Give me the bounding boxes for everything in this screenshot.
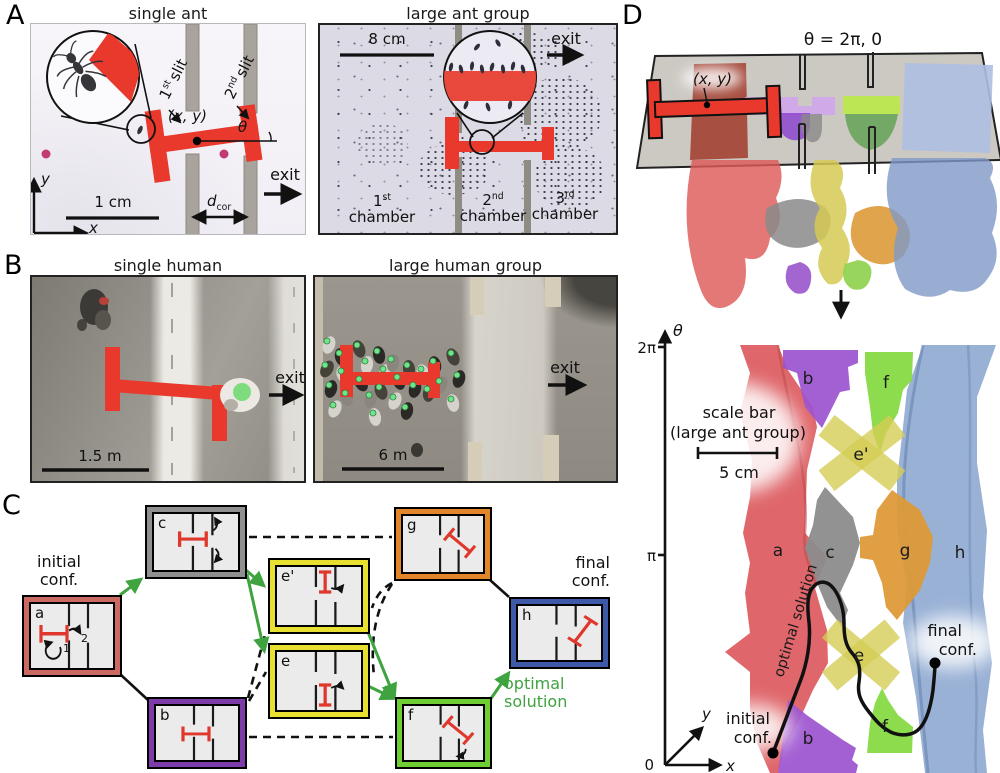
single-ant-overlay: [31, 24, 306, 235]
xy-dot: [704, 102, 710, 108]
exit-label: exit: [268, 369, 306, 386]
large-human-overlay: [315, 277, 616, 481]
volume-e: [811, 160, 850, 284]
scale-label: 6 m: [363, 447, 423, 464]
region-f-label: f: [882, 717, 889, 737]
config-f-diagram: [404, 706, 483, 760]
tick-pi: π: [647, 547, 656, 565]
panel-b-label: B: [4, 250, 23, 281]
y-axis-label: y: [41, 171, 50, 188]
photo-single-ant: 1st slit 2nd slit (x, y) θ exit 1 cm dco…: [30, 23, 306, 235]
config-node-a: a 1 2: [22, 595, 122, 677]
region-b-label: b: [803, 369, 814, 389]
final-conf-label-2: conf.: [939, 640, 977, 659]
dcor-label: dcor: [207, 193, 231, 216]
scale-label: 8 cm: [352, 31, 422, 48]
region-f-label: f: [883, 373, 890, 393]
theta-equation-label: θ = 2π, 0: [804, 30, 882, 50]
photo-single-human: exit 1.5 m: [30, 275, 306, 483]
small-ant: [136, 125, 144, 135]
volume-h: [887, 158, 997, 297]
human-group: [317, 334, 467, 426]
chamber-3-label: 3rd chamber: [530, 187, 600, 222]
theta-label: θ: [238, 119, 247, 136]
y-axis-label: y: [701, 705, 712, 723]
corridor-pillars: [468, 277, 561, 481]
region-f-slice: [843, 96, 900, 114]
node-letter: c: [158, 514, 166, 532]
exit-label: exit: [543, 359, 587, 376]
config-c-diagram: [154, 514, 238, 570]
figure-page: A B C D single ant large ant group singl…: [0, 0, 1000, 773]
volume-a: [687, 160, 782, 308]
x-axis-label: x: [89, 220, 98, 235]
region-a-label: a: [773, 541, 783, 561]
initial-conf-label-1: initial: [726, 709, 770, 728]
volume-f: [843, 260, 871, 290]
region-e-label: e: [854, 646, 864, 666]
title-large-ant-group: large ant group: [318, 4, 618, 23]
theta-axis-label: θ: [673, 321, 683, 340]
magnified-load-edge: [442, 71, 538, 101]
title-single-ant: single ant: [30, 4, 306, 23]
node-letter: f: [408, 706, 413, 724]
scale-value-label: 5 cm: [719, 463, 759, 482]
scale-label: 1.5 m: [65, 448, 135, 465]
step-1-label: 1: [63, 642, 70, 655]
node-letter: e: [281, 652, 290, 670]
final-conf-label: finalconf.: [532, 554, 610, 590]
title-large-human-group: large human group: [313, 256, 618, 275]
initial-conf-label: initialconf.: [20, 553, 98, 589]
marker-dot: [220, 150, 229, 159]
region-b-label: b: [803, 729, 814, 749]
node-letter: g: [407, 516, 417, 534]
node-letter: b: [160, 706, 170, 724]
region-h-label: h: [955, 543, 966, 563]
config-node-e-prime: e': [268, 558, 370, 634]
node-letter: e': [281, 567, 294, 585]
panel-d-label: D: [622, 0, 643, 31]
initial-conf-dot: [768, 748, 779, 759]
scalebar-label-2: (large ant group): [670, 423, 806, 442]
title-single-human: single human: [30, 256, 306, 275]
marker-dot: [42, 150, 51, 159]
step-2-label: 2: [81, 632, 88, 645]
region-c-label: c: [825, 543, 834, 563]
exit-label: exit: [263, 166, 306, 183]
region-e-prime-label: e': [853, 445, 868, 465]
config-space-plot: θ 2π π 0 x y scale bar (large ant group)…: [628, 320, 1000, 773]
config-space-3d: (x, y) θ = 2π, 0: [630, 28, 1000, 330]
final-conf-label-1: final: [928, 621, 962, 640]
panel-a-label: A: [6, 0, 24, 31]
magnifier-inset: [45, 31, 155, 143]
final-conf-dot: [930, 658, 941, 669]
photo-large-human-group: exit 6 m: [313, 275, 618, 483]
config-node-b: b: [147, 697, 247, 769]
bystander-person: [77, 289, 111, 331]
region-g-label: g: [900, 541, 911, 561]
wall-strip: [315, 277, 323, 481]
initial-conf-label-2: conf.: [734, 728, 772, 747]
scale-label: 1 cm: [83, 194, 143, 211]
carrier-person: [220, 378, 260, 412]
node-letter: a: [35, 604, 44, 622]
exit-label: exit: [544, 30, 588, 47]
chamber-1-label: 1st chamber: [347, 190, 417, 225]
xy-coordinates-label: (x, y): [168, 108, 207, 125]
node-letter: h: [522, 606, 532, 624]
volume-b: [786, 262, 812, 294]
chamber-2-label: 2nd chamber: [458, 189, 528, 224]
optimal-solution-label: optimalsolution: [504, 675, 567, 711]
green-marker: [233, 383, 251, 401]
config-node-f: f: [395, 697, 492, 769]
xy-coordinates-label: (x, y): [693, 70, 732, 88]
tick-zero: 0: [644, 756, 654, 773]
config-node-e: e: [268, 643, 370, 719]
config-node-c: c: [145, 505, 247, 579]
tick-2pi: 2π: [637, 339, 656, 357]
config-node-h: h: [509, 597, 610, 669]
x-axis-label: x: [725, 757, 735, 773]
photo-large-ant-group: 8 cm exit 1st chamber 2nd chamber 3rd ch…: [318, 23, 618, 235]
scalebar-label-1: scale bar: [703, 403, 776, 422]
t-load: [105, 347, 227, 441]
config-node-g: g: [394, 507, 492, 581]
region-h-slice: [902, 63, 993, 153]
